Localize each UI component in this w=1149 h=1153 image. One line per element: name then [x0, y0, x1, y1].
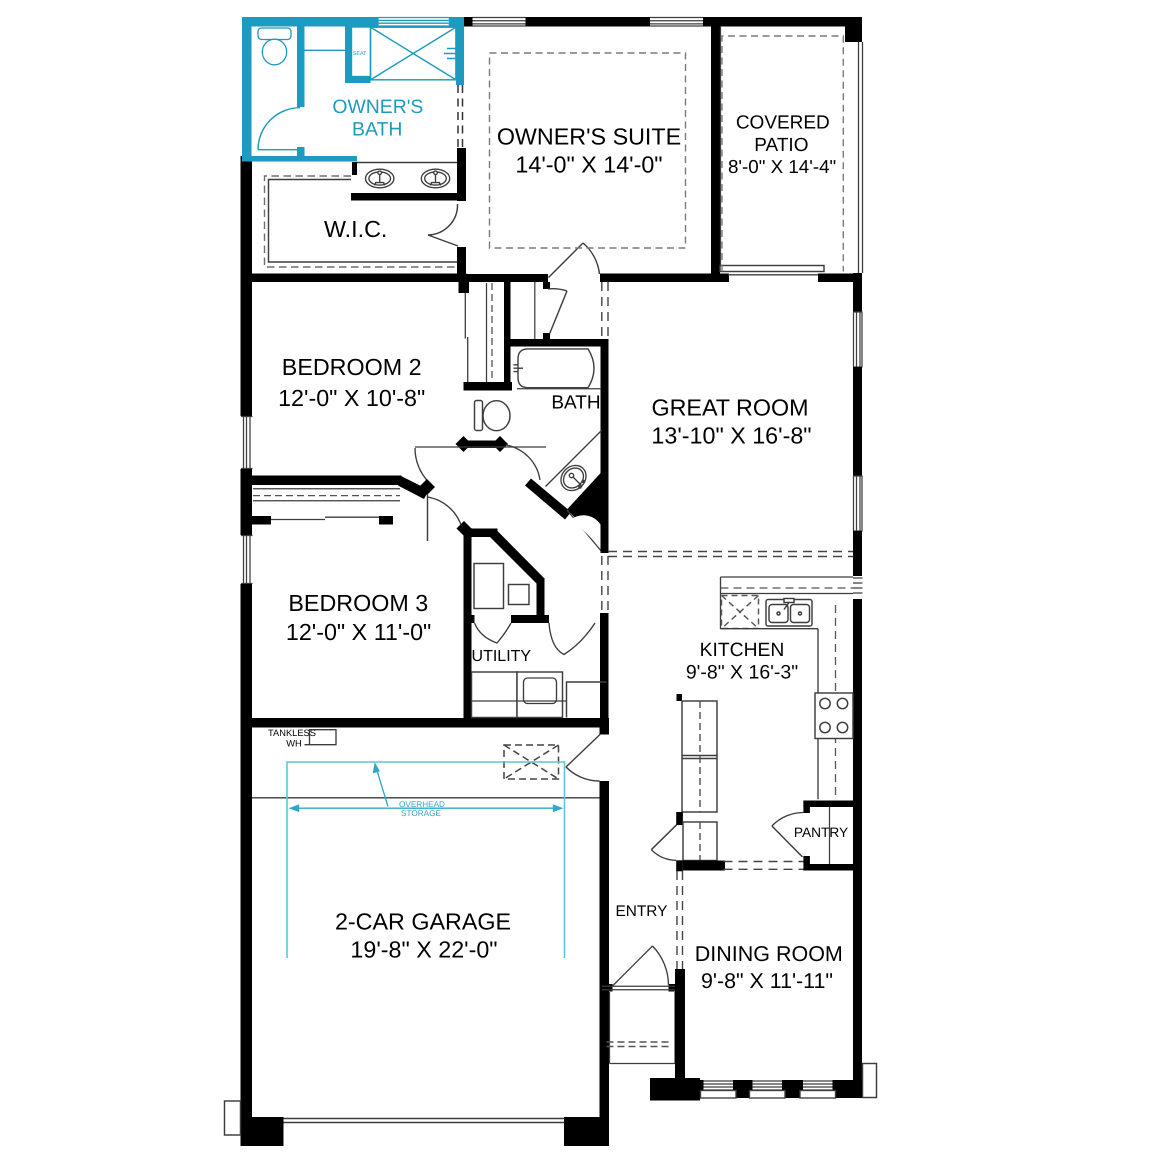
svg-text:GREAT ROOM: GREAT ROOM: [651, 394, 808, 420]
svg-text:DINING ROOM: DINING ROOM: [695, 942, 843, 966]
svg-text:KITCHEN: KITCHEN: [700, 640, 785, 661]
svg-text:14'-0" X 14'-0": 14'-0" X 14'-0": [515, 151, 662, 177]
svg-text:2-CAR GARAGE: 2-CAR GARAGE: [335, 908, 511, 934]
svg-text:9'-8" X 11'-11": 9'-8" X 11'-11": [701, 969, 833, 993]
svg-text:BATH: BATH: [352, 119, 402, 141]
svg-text:W.I.C.: W.I.C.: [324, 216, 387, 242]
svg-text:12'-0" X 11'-0": 12'-0" X 11'-0": [286, 619, 431, 645]
svg-text:PATIO: PATIO: [754, 135, 808, 156]
svg-text:OWNER'S: OWNER'S: [332, 96, 423, 118]
svg-text:BEDROOM 2: BEDROOM 2: [282, 354, 422, 380]
svg-text:19'-8" X 22'-0": 19'-8" X 22'-0": [350, 937, 497, 963]
svg-text:TANKLESS: TANKLESS: [268, 728, 316, 738]
svg-text:12'-0" X 10'-8": 12'-0" X 10'-8": [278, 385, 425, 411]
svg-text:9'-8" X 16'-3": 9'-8" X 16'-3": [686, 662, 798, 684]
svg-text:STORAGE: STORAGE: [401, 809, 441, 818]
svg-text:WH: WH: [286, 739, 302, 749]
svg-text:ENTRY: ENTRY: [615, 903, 667, 920]
svg-text:BATH: BATH: [551, 393, 600, 414]
svg-text:OWNER'S SUITE: OWNER'S SUITE: [497, 124, 681, 150]
svg-text:COVERED: COVERED: [736, 113, 830, 134]
svg-text:13'-10" X 16'-8": 13'-10" X 16'-8": [651, 423, 811, 449]
svg-text:SEAT: SEAT: [353, 51, 367, 57]
svg-text:UTILITY: UTILITY: [472, 648, 532, 665]
svg-text:PANTRY: PANTRY: [794, 825, 848, 840]
svg-text:BEDROOM 3: BEDROOM 3: [288, 590, 428, 616]
svg-text:8'-0" X 14'-4": 8'-0" X 14'-4": [728, 156, 836, 177]
svg-text:OVERHEAD: OVERHEAD: [399, 800, 445, 809]
